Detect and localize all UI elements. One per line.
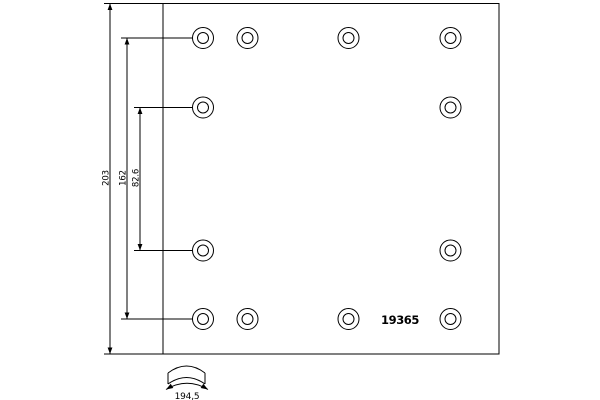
rivet-hole-inner [198,102,209,113]
rivet-hole-outer [440,309,461,330]
rivet-hole-outer [338,28,359,49]
arrowhead-left-icon [165,384,174,392]
dimension-label-inner-hole-spacing: 82.6 [132,169,142,187]
rivet-hole-outer [440,240,461,261]
arrowhead-down-icon [138,244,143,251]
arrowhead-down-icon [125,313,130,320]
dimension-inner-hole-spacing: 82.6 [132,108,193,251]
rivet-holes-group [193,28,462,330]
arrowhead-down-icon [108,348,113,355]
rivet-hole-inner [343,33,354,44]
rivet-hole-outer [193,309,214,330]
arrowhead-up-icon [138,108,143,115]
brake-lining-drawing: 19365 203 162 82.6 [0,0,600,400]
arrowhead-up-icon [108,4,113,11]
dimension-label-outer-hole-spacing: 162 [119,170,129,186]
dimension-overall-height: 203 [102,4,113,355]
rivet-hole-inner [198,33,209,44]
arrowhead-up-icon [125,38,130,45]
dimension-arc [166,383,208,389]
brake-lining-drawing-page: 19365 203 162 82.6 [0,0,600,400]
rivet-hole-outer [237,28,258,49]
rivet-hole-outer [338,309,359,330]
curved-profile-view [168,366,205,384]
rivet-hole-inner [198,245,209,256]
dimension-arc-width: 194,5 [165,383,210,400]
rivet-hole-inner [445,314,456,325]
rivet-hole-inner [242,33,253,44]
rivet-hole-inner [198,314,209,325]
rivet-hole-outer [193,240,214,261]
dimension-label-arc-width: 194,5 [175,392,200,400]
rivet-hole-outer [193,28,214,49]
arrowhead-right-icon [201,384,210,392]
rivet-hole-outer [440,28,461,49]
part-number: 19365 [381,313,419,327]
rivet-hole-outer [440,97,461,118]
rivet-hole-inner [445,33,456,44]
dimension-label-overall-height: 203 [102,170,112,186]
rivet-hole-inner [343,314,354,325]
rivet-hole-outer [193,97,214,118]
rivet-hole-inner [445,245,456,256]
profile-outer-arc [168,366,205,373]
rivet-hole-inner [445,102,456,113]
plate [104,4,499,355]
rivet-hole-inner [242,314,253,325]
plate-outline [163,4,499,355]
dimension-outer-hole-spacing: 162 [119,38,193,319]
rivet-hole-outer [237,309,258,330]
